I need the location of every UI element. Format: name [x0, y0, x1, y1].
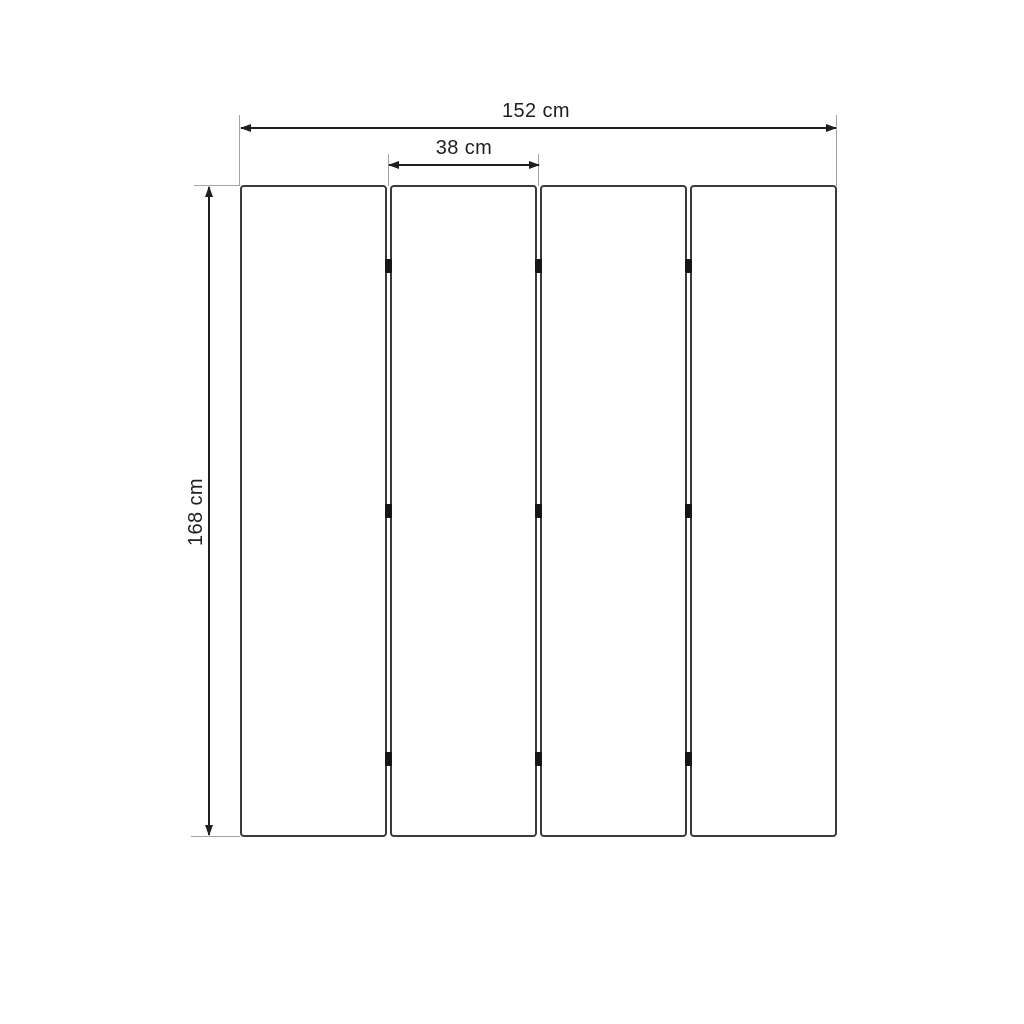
dimension-line-height [208, 187, 210, 835]
arrowhead-right-icon [529, 161, 540, 169]
hinge-gap2-top [535, 259, 542, 273]
panel-width-label: 38 cm [389, 137, 539, 159]
arrowhead-down-icon [205, 825, 213, 836]
hinge-gap3-bottom [685, 752, 692, 766]
dimension-line-panel-width [389, 164, 539, 166]
arrowhead-left-icon [240, 124, 251, 132]
arrowhead-right-icon [826, 124, 837, 132]
height-label: 168 cm [185, 478, 207, 546]
panel-2 [390, 185, 537, 837]
extension-line-bottom-edge [191, 836, 240, 837]
arrowhead-left-icon [388, 161, 399, 169]
hinge-gap3-middle [685, 504, 692, 518]
arrowhead-up-icon [205, 186, 213, 197]
hinge-gap1-bottom [385, 752, 392, 766]
panel-1 [240, 185, 387, 837]
extension-line-top-edge [194, 185, 240, 186]
hinge-gap2-middle [535, 504, 542, 518]
dimension-diagram: 152 cm 38 cm 168 cm [0, 0, 1024, 1024]
hinge-gap2-bottom [535, 752, 542, 766]
dimension-line-total-width [241, 127, 836, 129]
hinge-gap1-top [385, 259, 392, 273]
panel-3 [540, 185, 687, 837]
hinge-gap3-top [685, 259, 692, 273]
panel-4 [690, 185, 837, 837]
total-width-label: 152 cm [436, 100, 636, 122]
hinge-gap1-middle [385, 504, 392, 518]
